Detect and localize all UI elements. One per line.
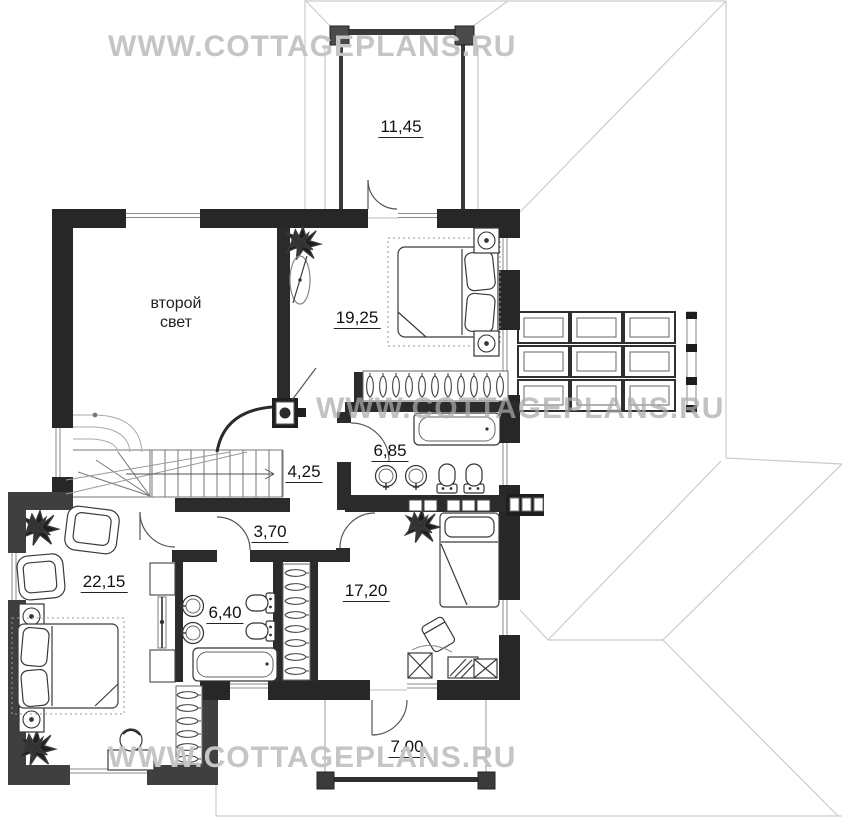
nightstand bbox=[19, 707, 44, 732]
bedroom-top-furniture bbox=[287, 227, 501, 357]
chimney-right-wall bbox=[506, 494, 544, 516]
bedroom-left-furniture bbox=[12, 505, 154, 770]
toilet-icon bbox=[437, 464, 457, 493]
door-second-light bbox=[217, 407, 272, 452]
floor-mirror bbox=[290, 256, 310, 304]
toilet-icon bbox=[246, 593, 275, 613]
plant-icon bbox=[287, 227, 321, 260]
plant-icon bbox=[23, 511, 59, 546]
nightstand bbox=[474, 228, 499, 253]
stairs-direction-arrow bbox=[126, 469, 274, 479]
wardrobe-bedroom-bottom bbox=[283, 564, 310, 680]
toilet-icon bbox=[464, 464, 484, 493]
bathtub bbox=[193, 648, 277, 681]
desk-chair bbox=[421, 616, 456, 653]
area-label-bedroom-bottom: 17,20 bbox=[343, 581, 390, 601]
sink-icon bbox=[406, 466, 427, 491]
double-bed bbox=[18, 624, 118, 708]
watermark-middle: WWW.COTTAGEPLANS.RU bbox=[316, 392, 724, 426]
door-leaf-bedroom-top bbox=[292, 368, 316, 400]
area-label-bathroom-bottom: 6,40 bbox=[206, 603, 243, 623]
stairs bbox=[66, 413, 283, 497]
stair-railing-curves bbox=[73, 415, 142, 452]
chimney-column bbox=[272, 398, 306, 428]
door-bedroom-left bbox=[140, 512, 175, 547]
single-bed bbox=[440, 513, 499, 607]
sink-icon bbox=[376, 466, 397, 491]
door-bedroom-bottom bbox=[340, 513, 375, 548]
floor-plan-page: WWW.COTTAGEPLANS.RU WWW.COTTAGEPLANS.RU … bbox=[0, 0, 842, 821]
area-label-bedroom-left: 22,15 bbox=[81, 572, 128, 592]
armchair bbox=[64, 505, 121, 555]
vanity-nook bbox=[150, 563, 175, 682]
area-label-hall: 4,25 bbox=[285, 462, 322, 482]
bedroom-bottom-furniture bbox=[406, 500, 500, 678]
terrace-beam bbox=[334, 777, 478, 782]
door-bathroom-bottom bbox=[217, 517, 250, 550]
nightstand bbox=[474, 331, 499, 356]
door-terrace bbox=[372, 700, 407, 735]
armchair bbox=[16, 553, 66, 601]
watermark-bottom: WWW.COTTAGEPLANS.RU bbox=[108, 741, 516, 775]
room-label-second-light: второй свет bbox=[151, 294, 202, 332]
area-label-bathroom-top: 6,85 bbox=[371, 441, 408, 461]
area-label-bedroom-top: 19,25 bbox=[334, 308, 381, 328]
headboard-shelf bbox=[409, 500, 490, 511]
watermark-top: WWW.COTTAGEPLANS.RU bbox=[108, 30, 516, 64]
area-label-balcony-top: 11,45 bbox=[378, 117, 423, 137]
door-balcony-top bbox=[368, 180, 397, 209]
plant-icon bbox=[406, 510, 440, 543]
area-label-corridor: 3,70 bbox=[251, 522, 288, 542]
double-bed bbox=[398, 247, 498, 337]
toilet-icon bbox=[246, 621, 275, 641]
desk-area bbox=[408, 645, 497, 678]
